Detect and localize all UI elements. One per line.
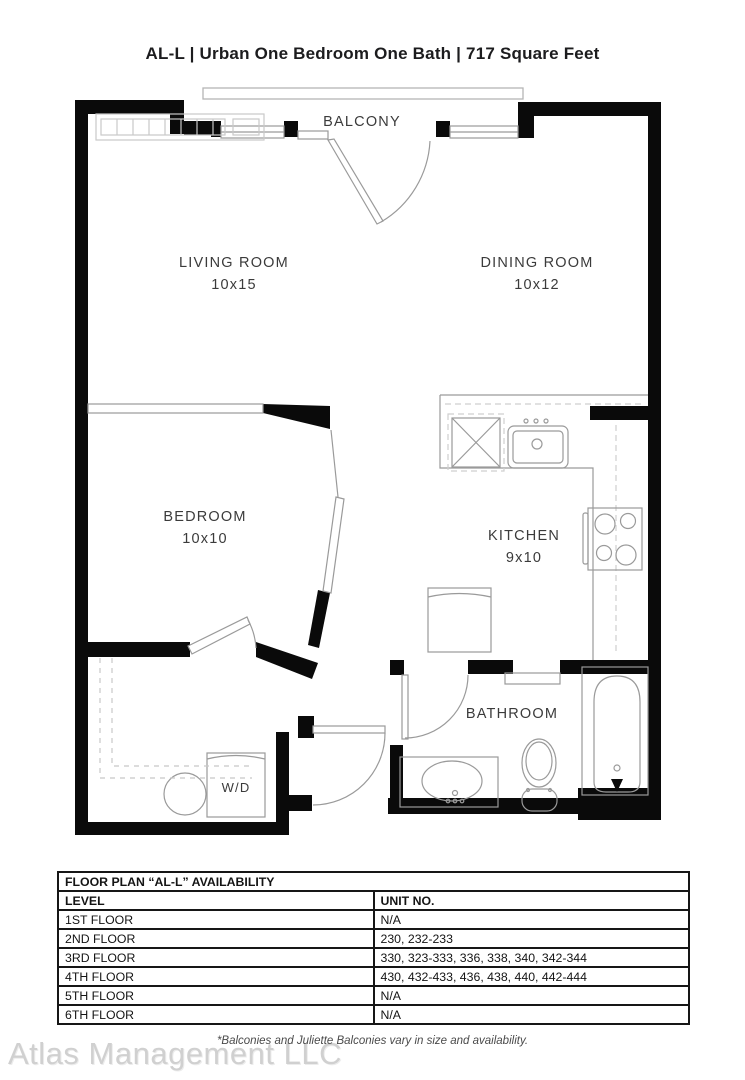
floor-plan-page: AL-L | Urban One Bedroom One Bath | 717 … <box>0 0 745 1080</box>
dining-room-dims: 10x12 <box>514 277 560 293</box>
table-row: 4TH FLOOR 430, 432-433, 436, 438, 440, 4… <box>58 967 689 986</box>
level-cell: 3RD FLOOR <box>58 948 374 967</box>
closet-dashed-lines <box>100 658 252 778</box>
balcony-disclaimer: *Balconies and Juliette Balconies vary i… <box>0 1035 745 1047</box>
table-row: 3RD FLOOR 330, 323-333, 336, 338, 340, 3… <box>58 948 689 967</box>
windows <box>88 126 518 413</box>
corner-cabinet <box>452 418 500 467</box>
table-title: FLOOR PLAN “AL-L” AVAILABILITY <box>58 872 689 891</box>
balcony-door <box>328 139 430 224</box>
level-cell: 5TH FLOOR <box>58 986 374 1005</box>
level-cell: 4TH FLOOR <box>58 967 374 986</box>
availability-table: FLOOR PLAN “AL-L” AVAILABILITY LEVEL UNI… <box>57 871 690 1025</box>
bedroom-label: BEDROOM <box>163 509 246 525</box>
unit-column-header: UNIT NO. <box>374 891 690 910</box>
bathtub <box>582 667 648 795</box>
level-cell: 6TH FLOOR <box>58 1005 374 1024</box>
stove <box>583 508 642 570</box>
refrigerator <box>428 588 491 652</box>
kitchen-label: KITCHEN <box>488 528 560 544</box>
floor-plan-drawing: BALCONY LIVING ROOM 10x15 DINING ROOM 10… <box>0 0 745 860</box>
table-row: 2ND FLOOR 230, 232-233 <box>58 929 689 948</box>
unit-cell: 230, 232-233 <box>374 929 690 948</box>
table-header-row: LEVEL UNIT NO. <box>58 891 689 910</box>
table-row: 5TH FLOOR N/A <box>58 986 689 1005</box>
living-room-dims: 10x15 <box>211 277 257 293</box>
level-column-header: LEVEL <box>58 891 374 910</box>
unit-cell: 330, 323-333, 336, 338, 340, 342-344 <box>374 948 690 967</box>
entry-door <box>313 726 385 805</box>
table-title-row: FLOOR PLAN “AL-L” AVAILABILITY <box>58 872 689 891</box>
kitchen-sink <box>508 419 568 468</box>
table-row: 1ST FLOOR N/A <box>58 910 689 929</box>
table-row: 6TH FLOOR N/A <box>58 1005 689 1024</box>
unit-cell: N/A <box>374 910 690 929</box>
level-cell: 1ST FLOOR <box>58 910 374 929</box>
bathroom-door <box>402 675 468 739</box>
dining-room-label: DINING ROOM <box>480 255 593 271</box>
bedroom-door <box>188 617 256 654</box>
unit-cell: 430, 432-433, 436, 438, 440, 442-444 <box>374 967 690 986</box>
living-room-label: LIVING ROOM <box>179 255 289 271</box>
balcony-label: BALCONY <box>323 114 401 130</box>
bathroom-niche <box>505 673 560 684</box>
kitchen-dims: 9x10 <box>506 550 542 566</box>
level-cell: 2ND FLOOR <box>58 929 374 948</box>
water-heater <box>164 773 206 815</box>
bedroom-dims: 10x10 <box>182 531 228 547</box>
balcony-outline <box>203 88 523 99</box>
bedroom-sliding-door <box>323 430 344 593</box>
unit-cell: N/A <box>374 1005 690 1024</box>
bathroom-label: BATHROOM <box>466 706 558 722</box>
doors <box>188 139 468 805</box>
unit-cell: N/A <box>374 986 690 1005</box>
washer-dryer-label: W/D <box>222 780 251 795</box>
